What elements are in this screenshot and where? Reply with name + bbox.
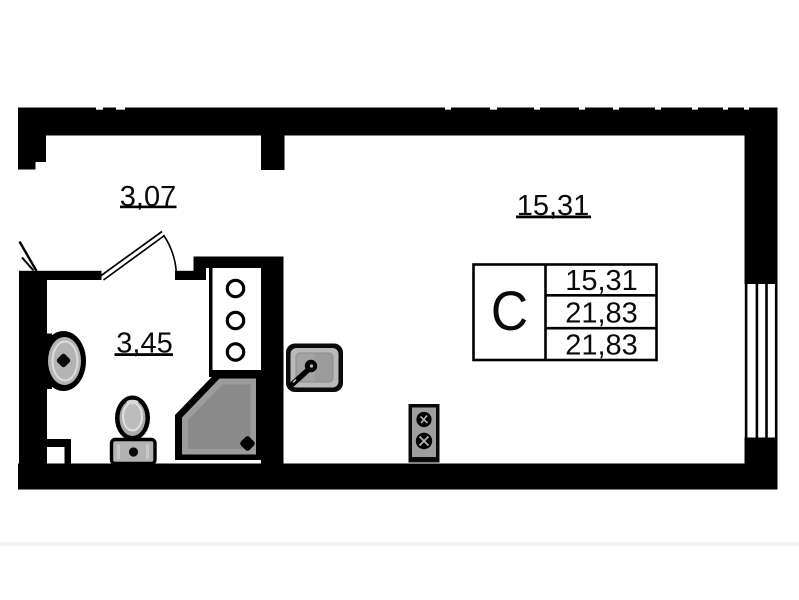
svg-text:15,31: 15,31 <box>565 265 638 297</box>
svg-text:21,83: 21,83 <box>565 330 638 362</box>
svg-text:21,83: 21,83 <box>565 298 638 330</box>
svg-text:С: С <box>491 280 528 342</box>
